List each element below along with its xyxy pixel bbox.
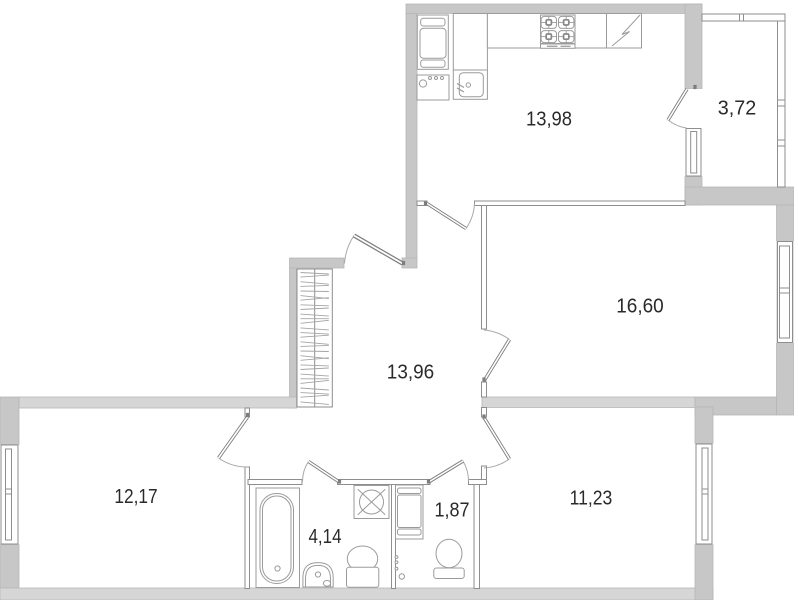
- svg-text:11,23: 11,23: [570, 488, 613, 510]
- svg-text:13,98: 13,98: [526, 109, 572, 131]
- svg-text:16,60: 16,60: [616, 296, 664, 318]
- svg-text:13,96: 13,96: [387, 362, 434, 384]
- svg-text:3,72: 3,72: [718, 98, 757, 120]
- svg-text:1,87: 1,87: [435, 500, 470, 522]
- svg-text:12,17: 12,17: [114, 486, 157, 508]
- svg-text:4,14: 4,14: [309, 526, 342, 548]
